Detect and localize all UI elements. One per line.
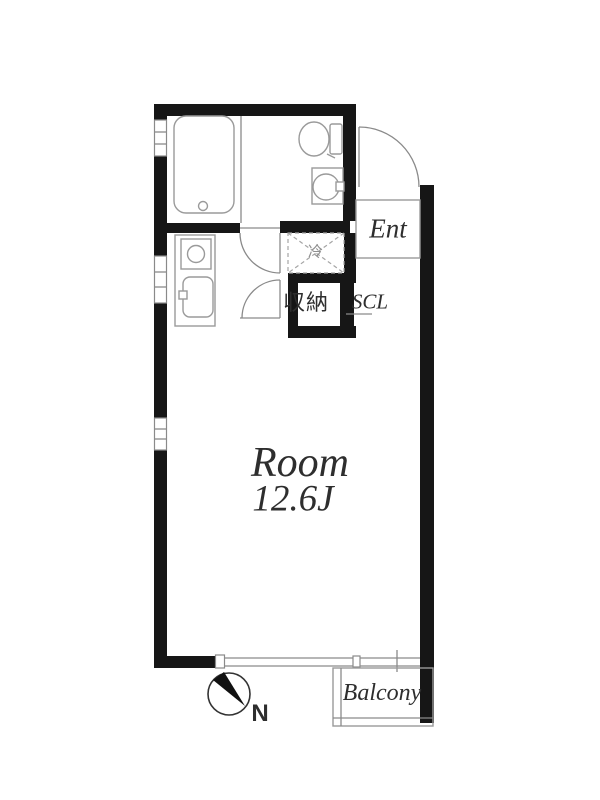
compass-north-label: N [251, 702, 268, 726]
room-size-label: 12.6J [252, 481, 333, 518]
wall-fridge-right [344, 233, 356, 273]
window-room [155, 418, 167, 450]
walls [154, 104, 434, 723]
toilet-tank [330, 124, 342, 154]
wall-bathroom-bottom [154, 223, 240, 233]
wall-left-seg4 [154, 450, 167, 668]
window-kitchen [155, 256, 167, 303]
room-door-arc [242, 280, 280, 318]
bathroom [174, 116, 241, 223]
wall-closet-bottom [288, 326, 356, 338]
wall-left-seg2 [154, 156, 167, 256]
room-door [240, 280, 280, 318]
entrance-door [359, 127, 419, 187]
wall-left-seg1 [154, 104, 167, 120]
wall-top [154, 104, 356, 116]
bottom-window-end-cap [216, 655, 225, 668]
washroom-door-arc [240, 233, 280, 273]
bathtub [174, 116, 234, 213]
washbasin-bowl [313, 174, 339, 200]
compass-icon [208, 672, 250, 715]
toilet-room [299, 122, 344, 204]
wall-right [420, 185, 434, 723]
kitchen-faucet [179, 291, 187, 299]
washbasin-faucet [336, 182, 344, 191]
wall-closet-top [288, 273, 356, 283]
balcony-label: Balcony [343, 681, 422, 705]
refrigerator-label: 冷 [308, 246, 324, 261]
stove-burner [188, 246, 205, 263]
shoe-closet-label: SCL [352, 292, 388, 313]
wall-toiletroom-bottom [280, 221, 350, 233]
storage-label: 収納 [283, 292, 329, 314]
stove-top [181, 239, 211, 269]
wall-toilet-entrance [343, 116, 356, 221]
floor-plan: Ent SCL 収納 冷 Room 12.6J Balcony N [0, 0, 600, 800]
window-bathroom [155, 120, 167, 156]
entrance-label: Ent [369, 216, 407, 243]
washroom-door [240, 228, 280, 273]
entrance-door-arc [359, 127, 419, 187]
wall-left-seg3 [154, 303, 167, 418]
wall-bottom-left [154, 656, 224, 668]
floor-plan-canvas [0, 0, 600, 800]
kitchen [175, 235, 215, 326]
toilet-bowl [299, 122, 329, 156]
bathtub-drain [199, 202, 208, 211]
bottom-window-stile [353, 656, 360, 667]
